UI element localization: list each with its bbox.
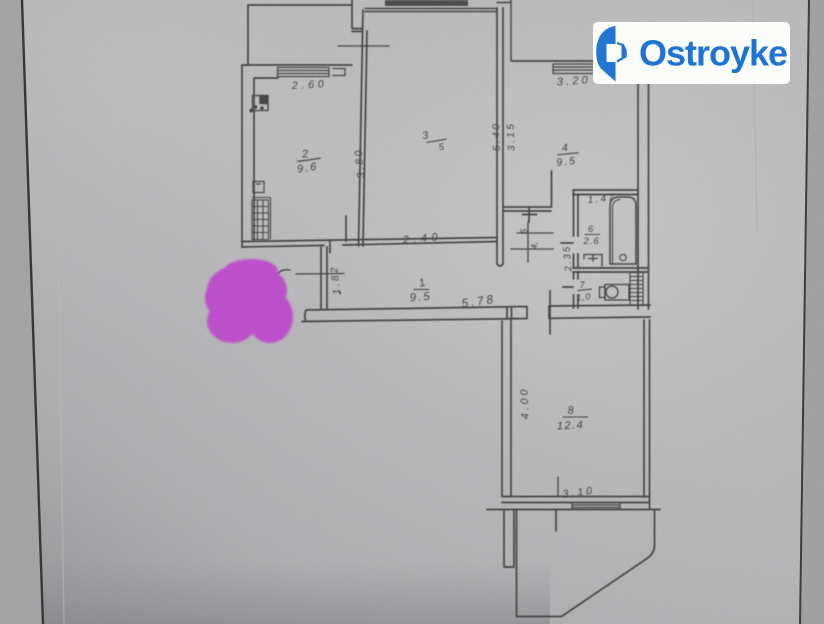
svg-text:Ostroyke: Ostroyke (639, 33, 787, 74)
